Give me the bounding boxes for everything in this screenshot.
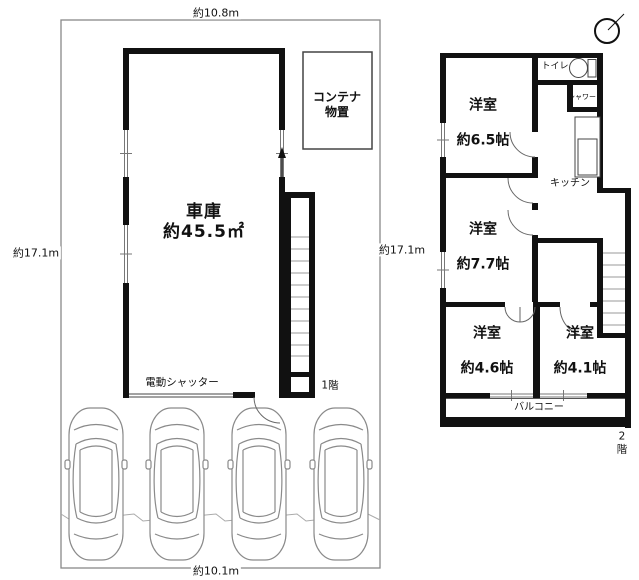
room-label-west-6-5: 洋室 約6.5帖 [457,79,510,167]
toilet-label: トイレ [541,62,568,73]
garage-name-label: 車庫 [186,202,222,222]
floorplan-canvas: 約10.8m 約17.1m 約17.1m 約10.1m 車庫 約45.5㎡ コン… [0,0,639,580]
floorplan-linework [0,0,639,580]
room-size: 約6.5帖 [457,132,510,150]
room-name: 洋室 [457,97,510,115]
north-compass-icon [595,14,624,43]
room-name: 洋室 [461,325,514,343]
dimension-left: 約17.1m [11,246,61,259]
parking-cars [65,408,372,560]
dimension-bottom: 約10.1m [191,564,241,577]
room-label-west-7-7: 洋室 約7.7帖 [457,203,510,291]
balcony-label: バルコニー [514,402,564,414]
room-size: 約4.6帖 [461,360,514,378]
electric-shutter-line [129,394,233,397]
room-name: 洋室 [554,325,607,343]
room-label-west-4-1: 洋室 約4.1帖 [554,307,607,395]
car-icon [310,408,372,560]
floor1-label: 1階 [321,380,338,393]
car-icon [146,408,208,560]
kitchen-label: キッチン [550,178,590,190]
toilet-bowl-icon [570,59,597,78]
dimension-right: 約17.1m [377,243,427,256]
room-size: 約7.7帖 [457,256,510,274]
electric-shutter-label: 電動シャッター [145,377,219,390]
car-icon [228,408,290,560]
dimension-top: 約10.8m [191,6,241,19]
stairs-1f [291,237,309,356]
car-icon [65,408,127,560]
kitchen-sink-icon [575,117,600,177]
shower-label: シャワー [568,93,596,101]
container-storage-label: コンテナ 物置 [313,90,361,120]
garage-area-label: 約45.5㎡ [163,222,245,242]
floor2-label: 2階 [614,430,631,455]
room-name: 洋室 [457,221,510,239]
room-size: 約4.1帖 [554,360,607,378]
room-label-west-4-6: 洋室 約4.6帖 [461,307,514,395]
